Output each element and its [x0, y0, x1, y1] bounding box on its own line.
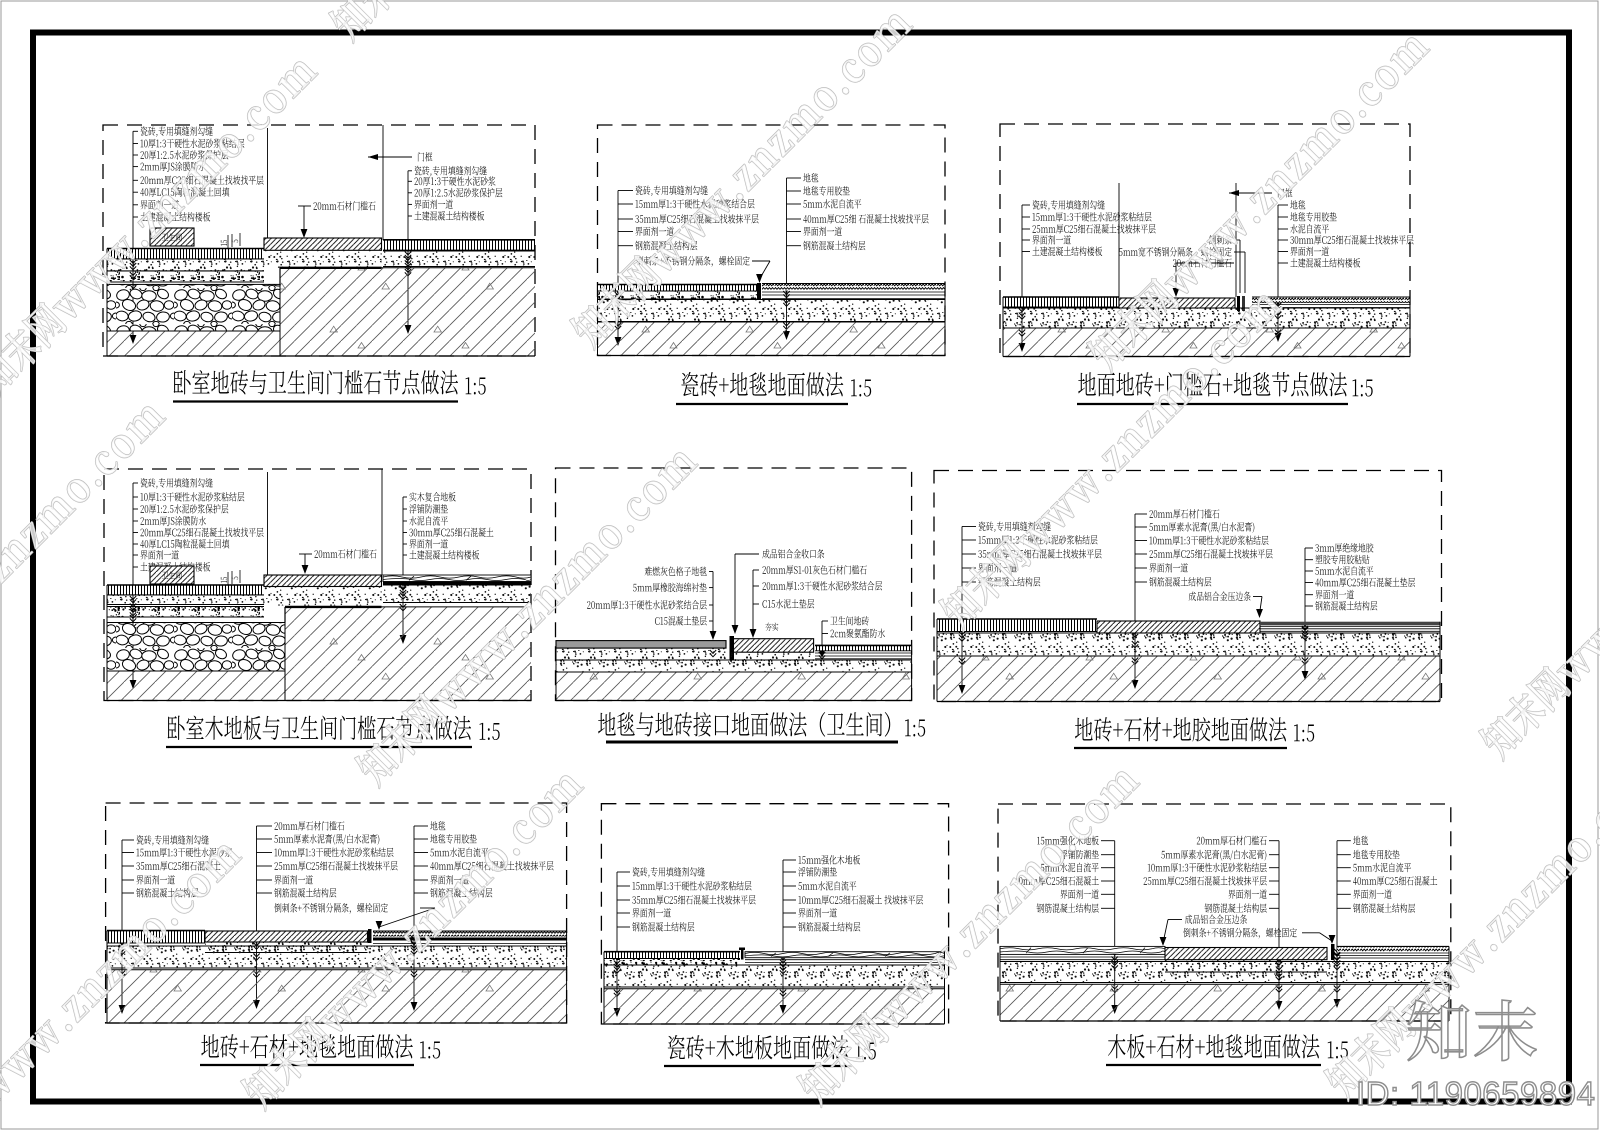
svg-text:ID: 1190659894: ID: 1190659894: [1356, 1075, 1595, 1112]
